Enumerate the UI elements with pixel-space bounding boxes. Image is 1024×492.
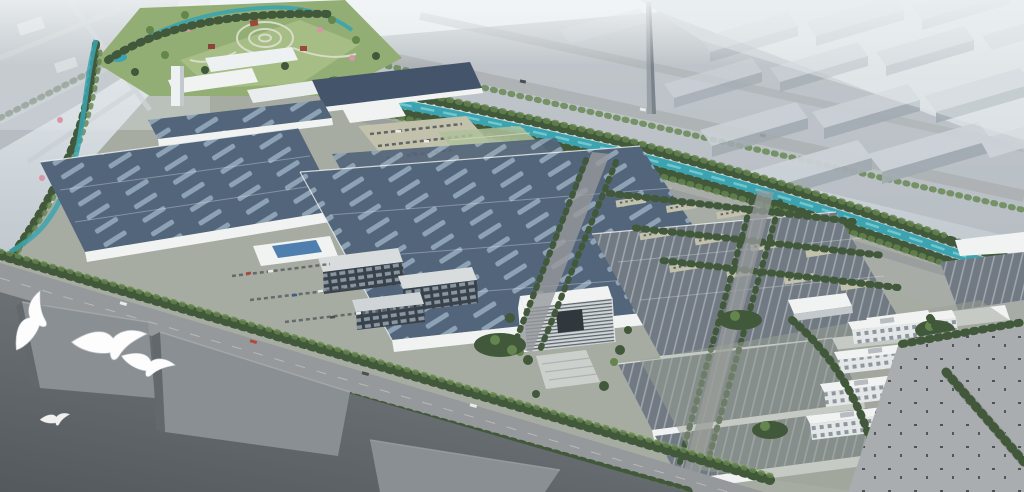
stair-tower <box>171 66 180 106</box>
aerial-rendering <box>0 0 1024 492</box>
industrial-park-scene <box>0 0 1024 492</box>
